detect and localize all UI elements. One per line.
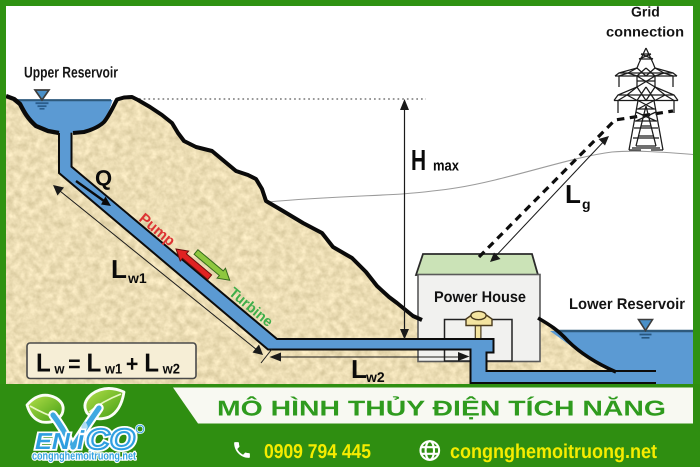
svg-text:L: L [351, 354, 367, 384]
svg-text:Q: Q [95, 166, 112, 191]
svg-text:L: L [565, 179, 581, 209]
svg-text:w2: w2 [365, 369, 385, 385]
svg-text:L: L [111, 254, 127, 284]
svg-text:w1: w1 [127, 270, 147, 286]
svg-text:connection: connection [606, 24, 684, 40]
svg-text:g: g [582, 196, 591, 212]
svg-text:Upper Reservoir: Upper Reservoir [24, 65, 118, 82]
svg-text:Power House: Power House [434, 289, 526, 306]
svg-text:congnghemoitruong.net: congnghemoitruong.net [32, 451, 136, 463]
svg-text:congnghemoitruong.net: congnghemoitruong.net [450, 441, 657, 463]
svg-text:0909 794 445: 0909 794 445 [264, 441, 371, 463]
svg-text:Lower Reservoir: Lower Reservoir [569, 296, 685, 313]
svg-text:H: H [411, 145, 426, 177]
svg-text:max: max [433, 158, 460, 175]
svg-text:MÔ HÌNH THỦY ĐIỆN TÍCH NĂNG: MÔ HÌNH THỦY ĐIỆN TÍCH NĂNG [217, 396, 666, 421]
